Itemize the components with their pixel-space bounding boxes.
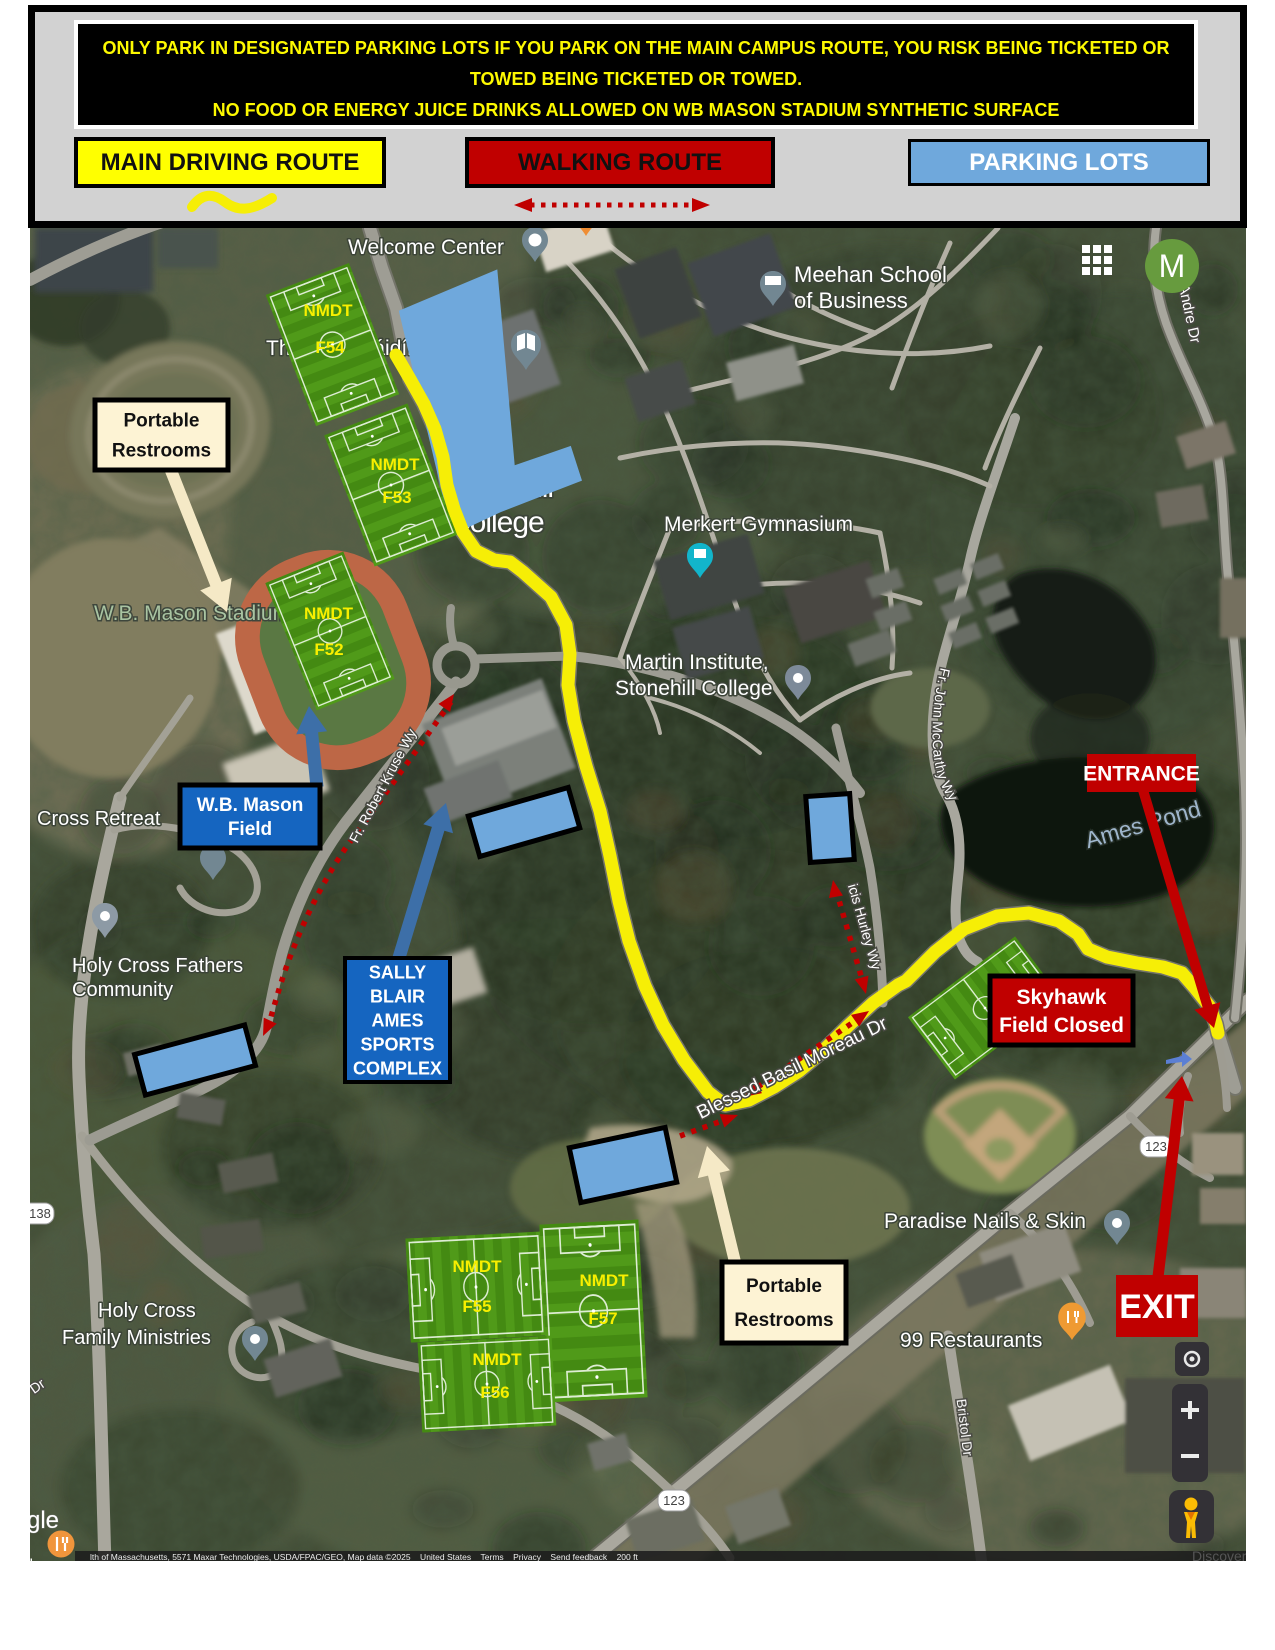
svg-text:F55: F55	[462, 1297, 491, 1316]
svg-text:of Business: of Business	[794, 288, 908, 313]
svg-text:Merkert Gymnasium: Merkert Gymnasium	[664, 513, 853, 536]
svg-text:F54: F54	[315, 338, 345, 357]
svg-text:ENTRANCE: ENTRANCE	[1083, 762, 1200, 785]
svg-text:SPORTS: SPORTS	[360, 1034, 434, 1054]
svg-text:W.B. Mason Stadium: W.B. Mason Stadium	[94, 602, 290, 625]
svg-text:Community: Community	[72, 979, 173, 1001]
svg-text:BLAIR: BLAIR	[370, 986, 425, 1006]
svg-text:NMDT: NMDT	[303, 301, 353, 320]
svg-text:Portable: Portable	[746, 1276, 822, 1297]
svg-text:F53: F53	[382, 488, 411, 507]
svg-text:M: M	[1159, 248, 1186, 284]
svg-text:lth of Massachusetts, 5571 Max: lth of Massachusetts, 5571 Maxar Technol…	[90, 1552, 638, 1561]
svg-text:Skyhawk: Skyhawk	[1017, 986, 1107, 1009]
svg-text:NMDT: NMDT	[472, 1350, 522, 1369]
svg-text:COMPLEX: COMPLEX	[353, 1058, 442, 1078]
svg-text:123: 123	[663, 1493, 685, 1508]
svg-text:EXIT: EXIT	[1119, 1288, 1195, 1326]
svg-text:F52: F52	[314, 640, 343, 659]
svg-text:SALLY: SALLY	[369, 962, 426, 982]
svg-text:F56: F56	[480, 1383, 509, 1402]
svg-text:Welcome Center: Welcome Center	[348, 236, 504, 259]
svg-text:gle: gle	[30, 1507, 59, 1534]
svg-text:NMDT: NMDT	[370, 455, 420, 474]
svg-text:Discover: Discover	[1192, 1548, 1246, 1561]
svg-text:NMDT: NMDT	[304, 604, 354, 623]
svg-text:Field Closed: Field Closed	[999, 1014, 1124, 1037]
svg-text:Restrooms: Restrooms	[112, 441, 211, 462]
svg-text:Cross Retreat: Cross Retreat	[37, 808, 161, 830]
svg-text:Portable: Portable	[123, 411, 199, 432]
svg-text:Family Ministries: Family Ministries	[62, 1327, 211, 1349]
svg-text:ll: ll	[30, 1557, 33, 1561]
svg-text:W.B. Mason: W.B. Mason	[197, 795, 304, 816]
svg-text:138: 138	[30, 1206, 51, 1221]
svg-text:F57: F57	[588, 1309, 617, 1328]
svg-text:Paradise Nails & Skin: Paradise Nails & Skin	[884, 1210, 1086, 1233]
svg-text:Holy Cross Fathers: Holy Cross Fathers	[72, 955, 243, 977]
svg-text:Meehan School: Meehan School	[794, 262, 947, 287]
svg-text:NMDT: NMDT	[452, 1257, 502, 1276]
svg-text:99 Restaurants: 99 Restaurants	[900, 1329, 1042, 1352]
svg-text:Field: Field	[228, 819, 272, 840]
svg-text:Holy Cross: Holy Cross	[98, 1300, 196, 1322]
svg-text:123: 123	[1145, 1139, 1167, 1154]
svg-text:AMES: AMES	[371, 1010, 423, 1030]
svg-text:Restrooms: Restrooms	[734, 1310, 833, 1331]
svg-text:Stonehill College: Stonehill College	[615, 677, 773, 700]
svg-text:Martin Institute,: Martin Institute,	[625, 651, 769, 674]
svg-text:NMDT: NMDT	[579, 1271, 629, 1290]
